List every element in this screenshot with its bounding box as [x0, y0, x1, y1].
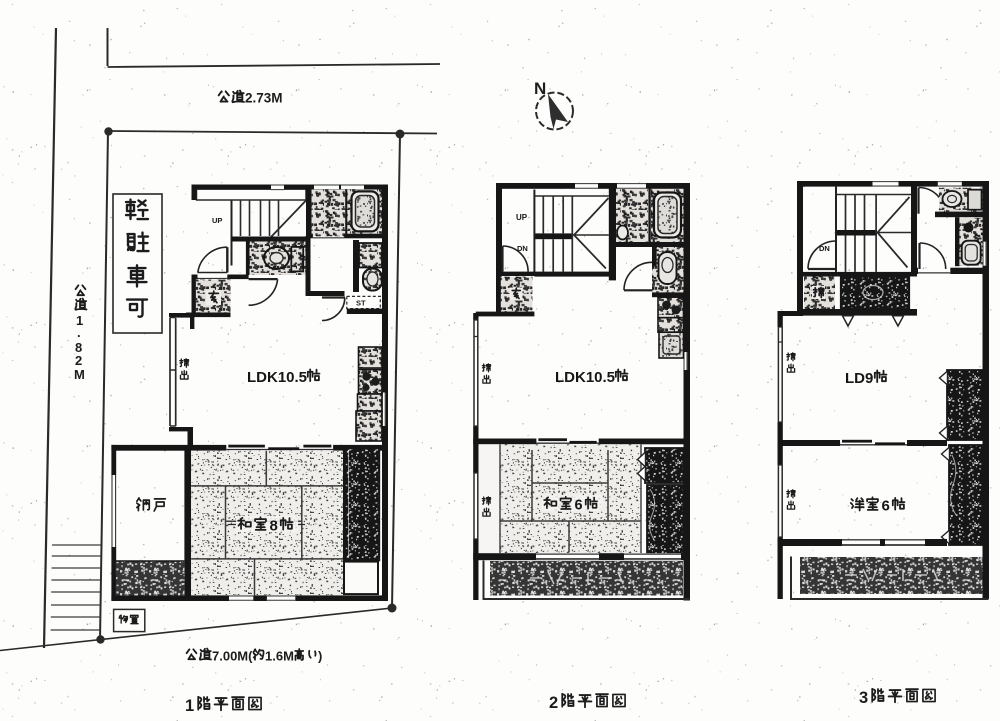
svg-text:LDK10.5: LDK10.5: [247, 369, 307, 386]
svg-text:3: 3: [859, 689, 868, 707]
svg-text:2.73M: 2.73M: [245, 91, 283, 106]
svg-text:M: M: [74, 367, 85, 382]
svg-text:1: 1: [185, 697, 194, 715]
svg-text:LD9: LD9: [845, 370, 873, 387]
svg-text:7.00M(: 7.00M(: [212, 649, 253, 664]
svg-text:LDK10.5: LDK10.5: [555, 369, 615, 386]
svg-text:2: 2: [75, 353, 82, 368]
svg-text:UP: UP: [516, 213, 528, 222]
svg-text:UP: UP: [212, 216, 222, 225]
svg-text:2: 2: [549, 694, 558, 712]
svg-text:.: .: [77, 325, 81, 340]
svg-text:1.6M: 1.6M: [265, 649, 294, 664]
svg-text:6: 6: [575, 498, 583, 514]
svg-text:8: 8: [270, 518, 278, 535]
svg-text:): ): [318, 649, 322, 664]
svg-text:6: 6: [882, 498, 890, 515]
svg-text:ST: ST: [356, 299, 366, 308]
